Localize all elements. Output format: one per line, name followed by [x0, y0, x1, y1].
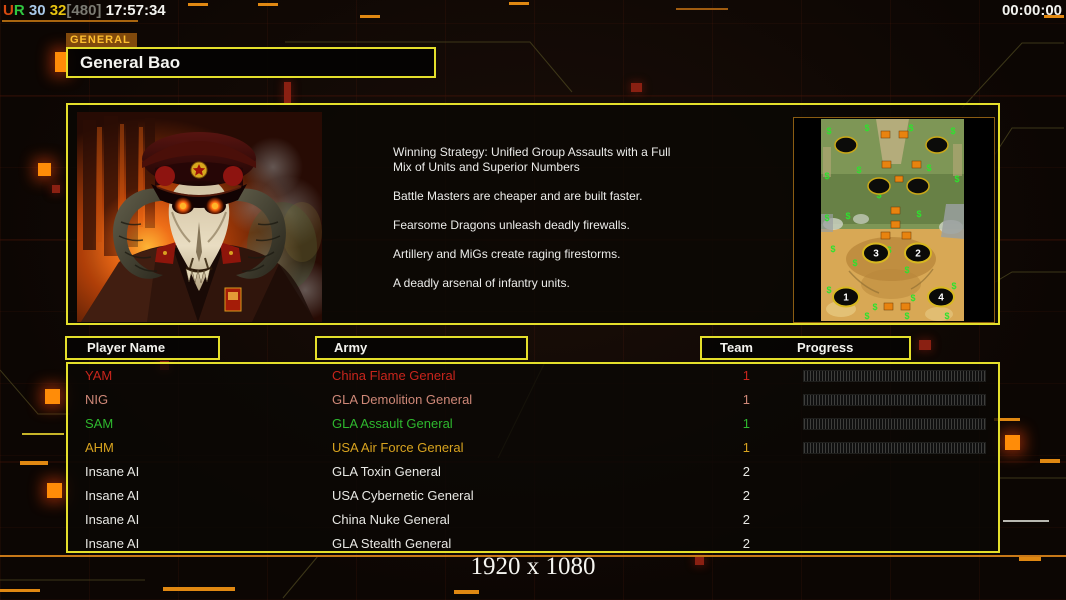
player-row: AHMUSA Air Force General1 [68, 436, 998, 460]
general-name: General Bao [80, 53, 180, 72]
svg-text:$: $ [824, 171, 829, 181]
start-position-number: 3 [873, 249, 879, 260]
player-row: NIGGLA Demolition General1 [68, 388, 998, 412]
stats-segment: U [3, 2, 14, 19]
stats-segment: 30 [25, 2, 46, 19]
player-list-rows: YAMChina Flame General1NIGGLA Demolition… [68, 364, 998, 551]
player-name: YAM [85, 364, 112, 388]
header-team: Team [720, 338, 753, 358]
player-name: Insane AI [85, 484, 139, 508]
general-info-panel: Winning Strategy: Unified Group Assaults… [66, 103, 1000, 325]
player-row: SAMGLA Assault General1 [68, 412, 998, 436]
svg-text:$: $ [916, 209, 921, 219]
stats-segment: R [14, 2, 25, 19]
team-number: 2 [720, 484, 750, 508]
progress-bar [803, 394, 986, 406]
network-stats: UR 30 32[480] 17:57:34 [3, 2, 166, 19]
header-team-progress: Team Progress [700, 336, 911, 360]
player-name: SAM [85, 412, 113, 436]
minimap: $$$$ $$$$ $$$$ $$$$ $$$$ $$$ 1234 [793, 117, 995, 323]
progress-bar [803, 442, 986, 454]
team-number: 1 [720, 436, 750, 460]
stats-segment: 32 [46, 2, 67, 19]
player-row: Insane AIGLA Toxin General2 [68, 460, 998, 484]
svg-text:$: $ [951, 281, 956, 291]
team-number: 2 [720, 460, 750, 484]
header-army: Army [315, 336, 528, 360]
svg-text:$: $ [872, 302, 877, 312]
svg-text:$: $ [908, 123, 913, 133]
start-position-number: 4 [938, 293, 944, 304]
team-number: 1 [720, 364, 750, 388]
strategy-paragraph: Fearsome Dragons unleash deadly firewall… [393, 218, 711, 233]
player-name: NIG [85, 388, 108, 412]
player-name: AHM [85, 436, 114, 460]
team-number: 1 [720, 412, 750, 436]
header-player-name: Player Name [65, 336, 220, 360]
player-name: Insane AI [85, 460, 139, 484]
general-portrait-image [77, 112, 322, 322]
svg-text:$: $ [904, 311, 909, 321]
svg-text:$: $ [926, 163, 931, 173]
svg-text:$: $ [845, 211, 850, 221]
army-name: GLA Demolition General [332, 388, 472, 412]
svg-text:$: $ [864, 311, 869, 321]
stats-segment: [480] [66, 2, 101, 19]
player-row: YAMChina Flame General1 [68, 364, 998, 388]
svg-text:$: $ [856, 165, 861, 175]
svg-text:$: $ [826, 126, 831, 136]
progress-bar [803, 370, 986, 382]
svg-text:$: $ [950, 126, 955, 136]
svg-text:$: $ [826, 285, 831, 295]
svg-text:$: $ [954, 174, 959, 184]
strategy-paragraph: A deadly arsenal of infantry units. [393, 276, 711, 291]
army-name: GLA Toxin General [332, 460, 441, 484]
team-number: 2 [720, 508, 750, 532]
progress-bar [803, 418, 986, 430]
minimap-image: $$$$ $$$$ $$$$ $$$$ $$$$ $$$ 1234 [821, 119, 964, 321]
strategy-paragraph: Artillery and MiGs create raging firesto… [393, 247, 711, 262]
svg-text:$: $ [904, 265, 909, 275]
svg-text:$: $ [852, 258, 857, 268]
army-name: China Nuke General [332, 508, 450, 532]
svg-text:$: $ [944, 311, 949, 321]
start-position-number: 1 [843, 293, 849, 304]
army-name: USA Cybernetic General [332, 484, 474, 508]
svg-text:$: $ [824, 213, 829, 223]
team-number: 1 [720, 388, 750, 412]
stats-segment: 17:57:34 [101, 2, 165, 19]
player-row: Insane AIChina Nuke General2 [68, 508, 998, 532]
general-name-box: General Bao [66, 47, 436, 78]
army-name: China Flame General [332, 364, 456, 388]
general-portrait [77, 112, 322, 322]
strategy-paragraph: Winning Strategy: Unified Group Assaults… [393, 145, 711, 175]
army-name: USA Air Force General [332, 436, 464, 460]
svg-text:$: $ [830, 244, 835, 254]
header-progress: Progress [797, 338, 853, 358]
general-tab-label: GENERAL [66, 33, 137, 47]
army-name: GLA Assault General [332, 412, 453, 436]
svg-text:$: $ [864, 123, 869, 133]
stats-underline [2, 20, 138, 22]
strategy-text: Winning Strategy: Unified Group Assaults… [393, 145, 711, 305]
svg-text:$: $ [910, 293, 915, 303]
resolution-label: 1920 x 1080 [0, 553, 1066, 581]
player-name: Insane AI [85, 508, 139, 532]
player-list-panel: YAMChina Flame General1NIGGLA Demolition… [66, 362, 1000, 553]
player-row: Insane AIUSA Cybernetic General2 [68, 484, 998, 508]
game-timer: 00:00:00 [1002, 2, 1062, 19]
start-position-number: 2 [915, 249, 921, 260]
strategy-paragraph: Battle Masters are cheaper and are built… [393, 189, 711, 204]
game-loading-screen: UR 30 32[480] 17:57:34 00:00:00 GENERAL … [0, 0, 1066, 600]
